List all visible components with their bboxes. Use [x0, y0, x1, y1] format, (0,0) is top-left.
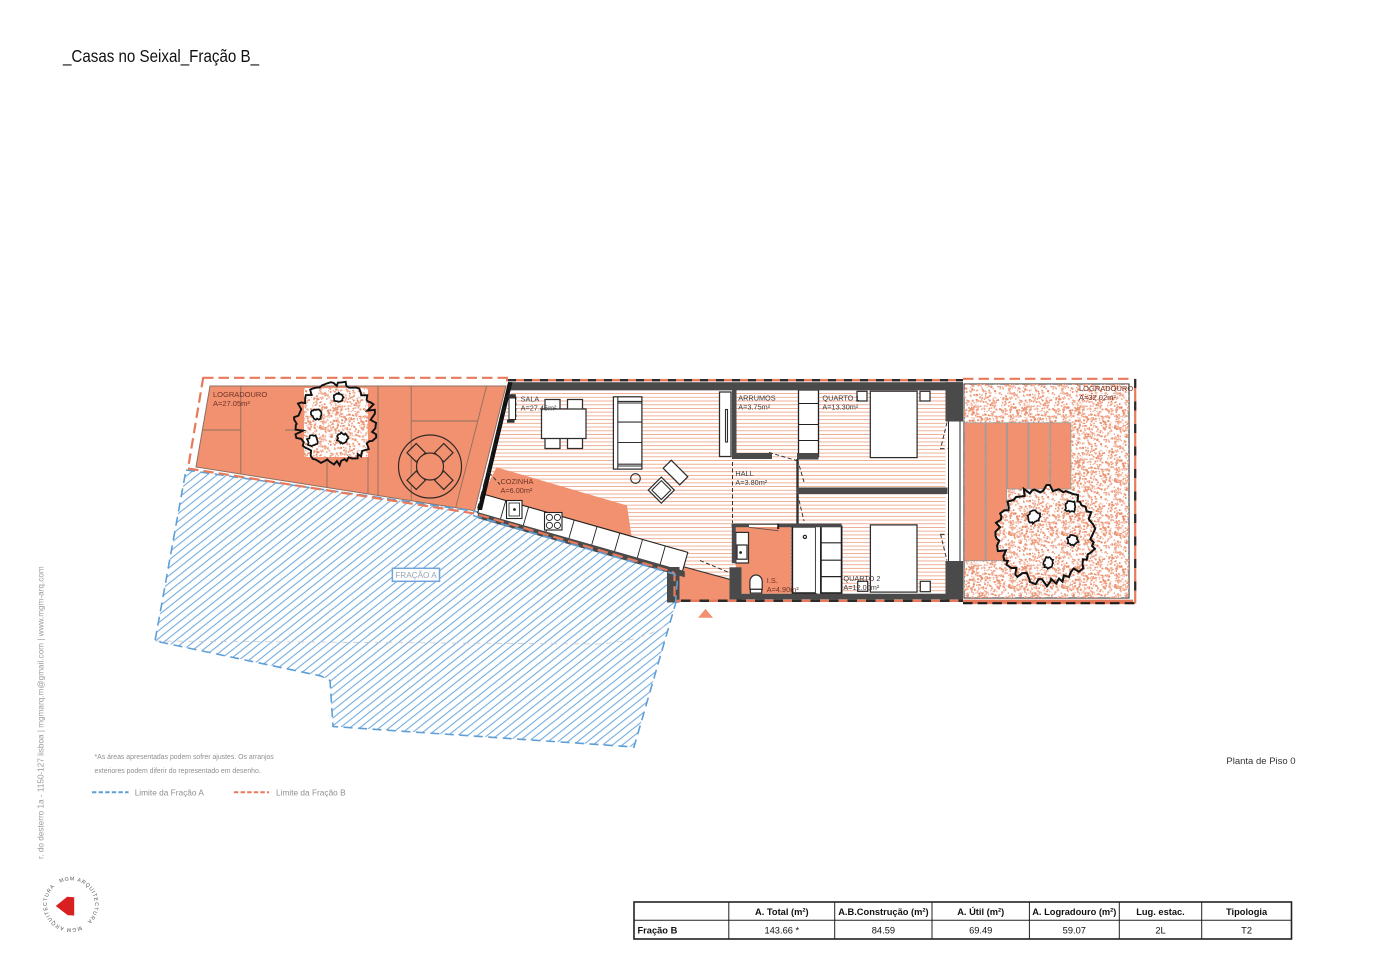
- svg-text:SALA: SALA: [521, 395, 540, 404]
- svg-text:T2: T2: [1241, 926, 1252, 936]
- svg-text:r. do desterro 1a - 1150-127 l: r. do desterro 1a - 1150-127 lisboa | mg…: [37, 566, 46, 859]
- svg-text:69.49: 69.49: [969, 926, 992, 936]
- svg-text:A=13.30m²: A=13.30m²: [822, 403, 858, 412]
- svg-text:A=4.90m²: A=4.90m²: [767, 585, 799, 594]
- svg-text:A=12.00m²: A=12.00m²: [843, 583, 879, 592]
- svg-text:Lug. estac.: Lug. estac.: [1136, 907, 1185, 917]
- svg-text:LOGRADOURO: LOGRADOURO: [1079, 384, 1133, 393]
- svg-text:A. Útil (m²): A. Útil (m²): [957, 906, 1004, 917]
- svg-text:_Casas no Seixal_Fração B_: _Casas no Seixal_Fração B_: [62, 46, 259, 67]
- svg-text:143.66 *: 143.66 *: [764, 926, 799, 936]
- svg-text:HALL: HALL: [735, 469, 753, 478]
- svg-text:I.S.: I.S.: [767, 576, 778, 585]
- svg-text:A. Total (m²): A. Total (m²): [755, 907, 809, 917]
- svg-text:A=3.80m²: A=3.80m²: [735, 478, 767, 487]
- svg-text:A=3.75m²: A=3.75m²: [738, 403, 770, 412]
- svg-text:QUARTO 1: QUARTO 1: [822, 394, 859, 403]
- svg-text:A=32.02m²: A=32.02m²: [1079, 393, 1116, 402]
- svg-text:A=27.05m²: A=27.05m²: [213, 399, 250, 408]
- svg-text:59.07: 59.07: [1063, 926, 1086, 936]
- svg-text:ARRUMOS: ARRUMOS: [738, 394, 775, 403]
- svg-text:A. Logradouro (m²): A. Logradouro (m²): [1032, 907, 1116, 917]
- svg-text:QUARTO 2: QUARTO 2: [843, 574, 880, 583]
- svg-text:A.B.Construção (m²): A.B.Construção (m²): [838, 907, 928, 917]
- svg-text:Fração B: Fração B: [638, 926, 678, 936]
- svg-text:Tipologia: Tipologia: [1226, 907, 1268, 917]
- svg-text:Planta de Piso 0: Planta de Piso 0: [1226, 756, 1295, 767]
- svg-text:exteriores podem diferir do re: exteriores podem diferir do representado…: [95, 768, 261, 775]
- svg-text:FRAÇÃO A: FRAÇÃO A: [395, 570, 437, 580]
- svg-text:A=27.45m²: A=27.45m²: [521, 404, 557, 413]
- svg-text:2L: 2L: [1155, 926, 1165, 936]
- svg-text:Limite da Fração A: Limite da Fração A: [135, 788, 205, 798]
- svg-text:Limite da Fração B: Limite da Fração B: [276, 788, 346, 798]
- svg-text:LOGRADOURO: LOGRADOURO: [213, 390, 267, 399]
- svg-text:84.59: 84.59: [872, 926, 895, 936]
- svg-text:*As áreas apresentadas podem s: *As áreas apresentadas podem sofrer ajus…: [95, 754, 275, 761]
- svg-text:COZINHA: COZINHA: [501, 477, 534, 486]
- svg-text:A=6.00m²: A=6.00m²: [501, 486, 533, 495]
